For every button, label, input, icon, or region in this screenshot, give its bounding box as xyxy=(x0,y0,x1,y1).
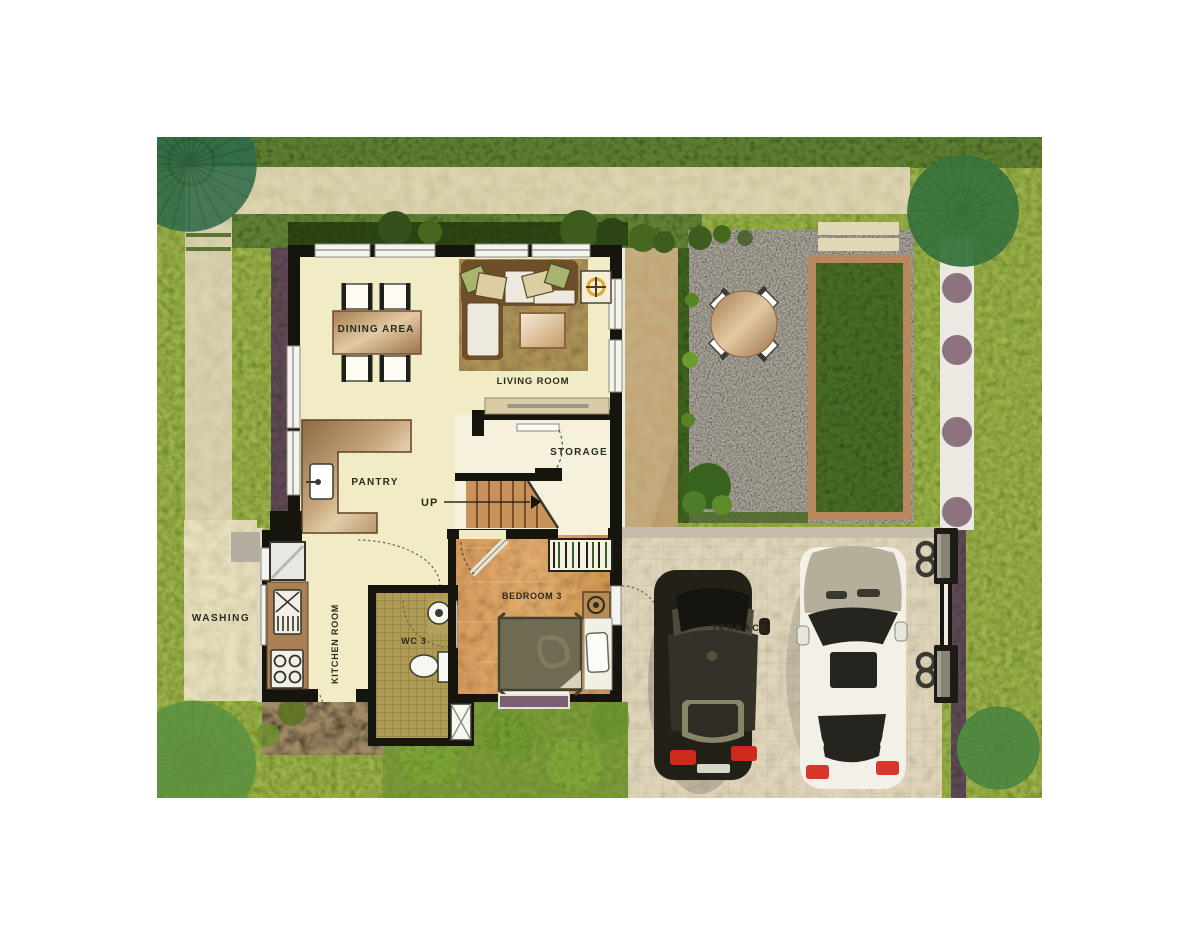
svg-text:UP: UP xyxy=(421,497,438,509)
svg-text:TERRACE: TERRACE xyxy=(711,623,768,634)
svg-text:PANTRY: PANTRY xyxy=(351,477,398,488)
svg-text:WC 3: WC 3 xyxy=(401,636,427,646)
svg-text:STORAGE: STORAGE xyxy=(550,447,608,458)
svg-text:LIVING ROOM: LIVING ROOM xyxy=(497,376,570,387)
svg-text:DINING AREA: DINING AREA xyxy=(338,324,415,335)
svg-text:BEDROOM 3: BEDROOM 3 xyxy=(502,591,562,601)
svg-text:KITCHEN ROOM: KITCHEN ROOM xyxy=(330,604,340,684)
svg-text:WASHING: WASHING xyxy=(192,613,250,624)
